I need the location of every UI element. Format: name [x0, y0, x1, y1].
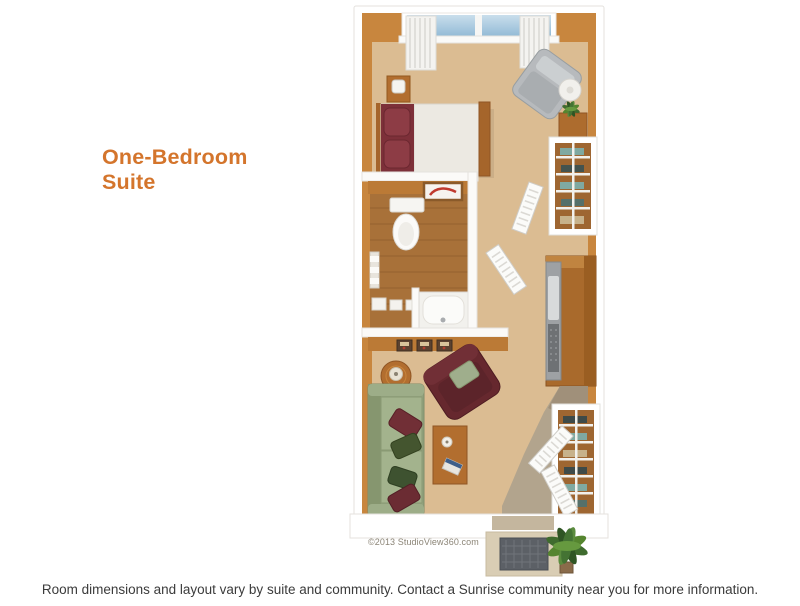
lamp — [392, 80, 405, 93]
shower — [419, 292, 468, 328]
wall-frames — [397, 340, 452, 351]
front-door-threshold — [492, 516, 554, 530]
bathroom-wall-art — [424, 183, 462, 200]
bathroom-east-wall — [468, 172, 477, 337]
kitchenette-cabinet — [546, 256, 596, 386]
nightstand — [387, 76, 410, 102]
shower-drain — [441, 318, 446, 323]
caption-text: Room dimensions and layout vary by suite… — [0, 582, 800, 597]
bed-pillow — [384, 140, 410, 168]
coffee-table — [433, 426, 467, 484]
copyright-text: ©2013 StudioView360.com — [368, 537, 479, 547]
bed — [376, 102, 494, 178]
bed-pillow — [384, 108, 410, 136]
floorplan-graphic — [0, 0, 800, 606]
living-north-wall — [362, 328, 508, 337]
towel-shelf — [370, 252, 379, 288]
bathroom-partition-wall — [412, 288, 419, 334]
curtain-left — [406, 16, 436, 70]
window-mullion — [475, 15, 482, 36]
bathroom-north-wall — [362, 172, 478, 181]
footboard — [479, 102, 490, 176]
floorplan-page: One-Bedroom Suite — [0, 0, 800, 606]
headboard — [376, 103, 381, 175]
sofa — [368, 384, 424, 516]
vanity — [372, 298, 416, 310]
linen-closet-upper — [549, 137, 597, 235]
bathroom — [362, 172, 478, 337]
